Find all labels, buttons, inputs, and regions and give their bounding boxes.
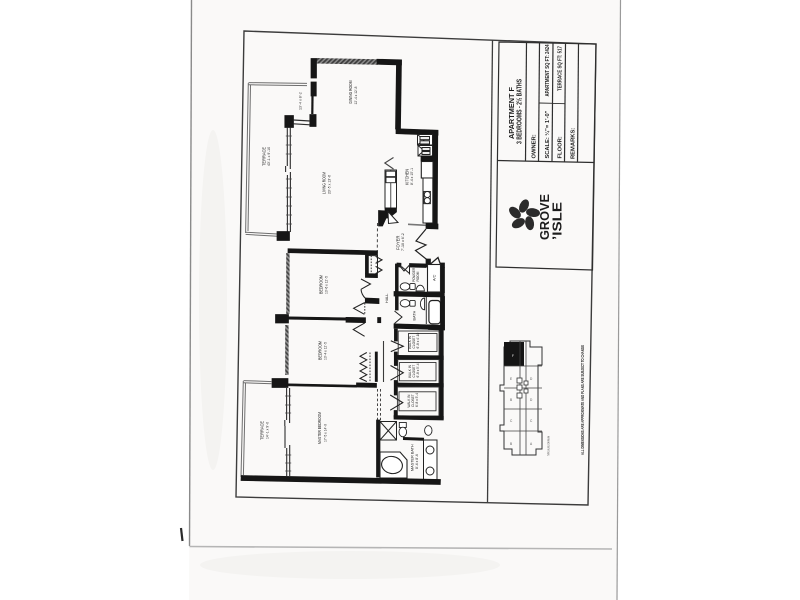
svg-text:MASTER BEDROOM: MASTER BEDROOM <box>317 412 322 444</box>
svg-text:8’-4 x 8’-6: 8’-4 x 8’-6 <box>415 454 419 469</box>
svg-text:FLOOR:: FLOOR: <box>558 136 564 158</box>
svg-text:BEDROOM: BEDROOM <box>319 275 324 294</box>
svg-text:13’-6 x 12’-5: 13’-6 x 12’-5 <box>325 276 329 294</box>
svg-text:ROOM: ROOM <box>416 271 420 281</box>
svg-text:TERRACE SQ FT: 517: TERRACE SQ FT: 517 <box>558 46 564 91</box>
svg-text:43’-1 x 9’-10: 43’-1 x 9’-10 <box>267 147 271 166</box>
svg-text:13’-4 x 12’-5: 13’-4 x 12’-5 <box>324 342 328 360</box>
svg-text:FOYER: FOYER <box>396 236 401 250</box>
svg-text:APARTMENT SQ FT: 2424: APARTMENT SQ FT: 2424 <box>545 44 551 97</box>
svg-text:HALL: HALL <box>385 294 389 304</box>
svg-text:14’-1 x 9’-0: 14’-1 x 9’-0 <box>266 422 270 439</box>
svg-text:ALL DIMENSIONS ARE APPROXIMATE: ALL DIMENSIONS ARE APPROXIMATE AND PLANS… <box>580 345 585 455</box>
svg-text:TERRACE: TERRACE <box>262 147 267 166</box>
svg-text:TYPICAL FLOOR PLAN: TYPICAL FLOOR PLAN <box>547 436 551 456</box>
svg-text:3 BEDROOMS - 2½ BATHS: 3 BEDROOMS - 2½ BATHS <box>515 79 524 144</box>
svg-text:13’-4 x 8’-2: 13’-4 x 8’-2 <box>299 92 303 110</box>
svg-text:6’-8 x 5’-4: 6’-8 x 5’-4 <box>415 393 419 407</box>
svg-text:REMARKS:: REMARKS: <box>571 128 577 159</box>
svg-text:DINING ROOM: DINING ROOM <box>348 80 353 103</box>
svg-text:LIVING ROOM: LIVING ROOM <box>322 172 327 194</box>
svg-text:12’-4 x 12’-8: 12’-4 x 12’-8 <box>354 87 358 105</box>
svg-text:MASTER BATH: MASTER BATH <box>411 444 415 471</box>
svg-text:23’-5 x 13’-6: 23’-5 x 13’-6 <box>328 175 332 194</box>
svg-text:6’-8 x 5’-4: 6’-8 x 5’-4 <box>416 363 420 377</box>
svg-text:OWNER:: OWNER: <box>532 134 538 158</box>
svg-text:SCALE: ¼”= 1’-0”: SCALE: ¼”= 1’-0” <box>544 110 551 158</box>
svg-text:17’-5 x 14’-0: 17’-5 x 14’-0 <box>324 424 328 442</box>
svg-text:F: F <box>512 354 514 358</box>
svg-text:A/C: A/C <box>433 274 437 281</box>
svg-text:8’-4 x 15’-1: 8’-4 x 15’-1 <box>410 168 414 185</box>
svg-text:KITCHEN: KITCHEN <box>405 169 410 185</box>
svg-text:TERRACE: TERRACE <box>260 421 265 440</box>
svg-text:BEDROOM: BEDROOM <box>318 341 323 360</box>
svg-text:BATH: BATH <box>413 310 417 320</box>
svg-text:6’-8 x 4’-10: 6’-8 x 4’-10 <box>416 333 420 349</box>
svg-text:B: B <box>510 442 512 446</box>
svg-text:E: E <box>510 377 512 381</box>
svg-text:B: B <box>510 398 512 402</box>
svg-text:’ISLE: ’ISLE <box>549 202 564 240</box>
svg-text:7’-10 x 6’-2: 7’-10 x 6’-2 <box>401 233 405 251</box>
